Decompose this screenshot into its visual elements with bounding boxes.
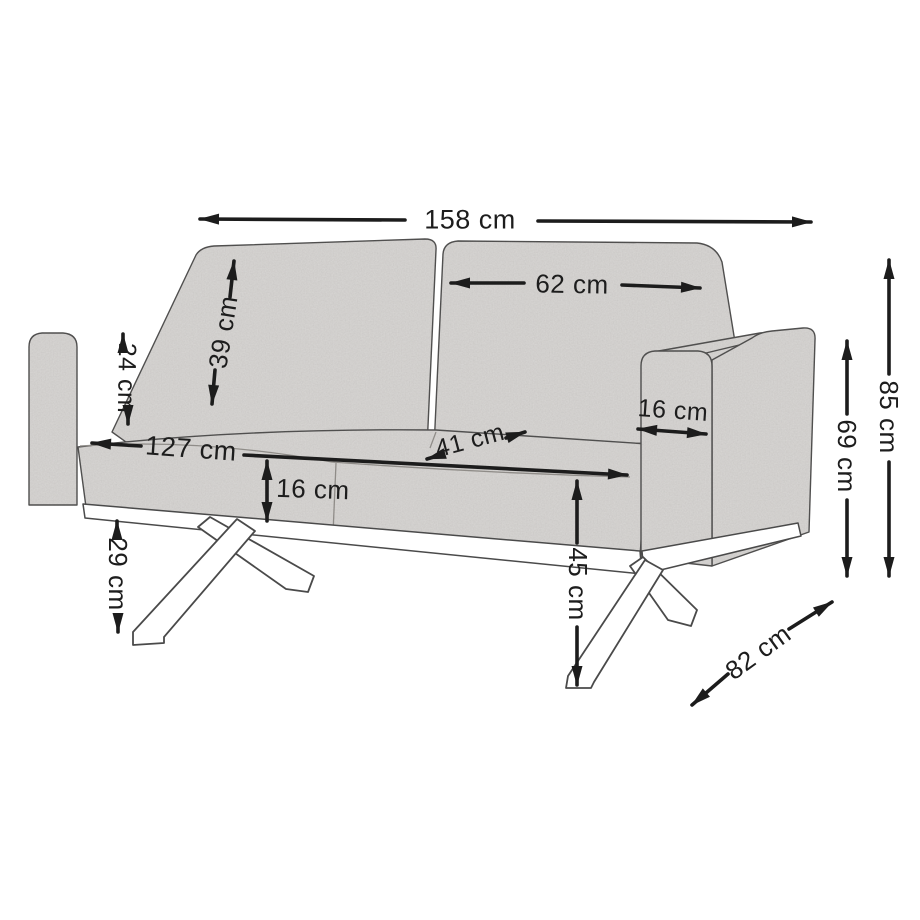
dim-label-seat-width: 127 cm: [144, 432, 237, 465]
sofa-illustration: [0, 0, 920, 920]
left-back-cushion: [112, 239, 436, 452]
left-arm-front: [29, 333, 77, 505]
left-leg-front-strut: [133, 519, 255, 645]
dim-label-seat-cushion-height: 16 cm: [276, 475, 350, 504]
dim-label-armrest-height: 69 cm: [834, 419, 860, 492]
dim-label-total-height: 85 cm: [876, 380, 902, 453]
dim-label-underframe-clearance: 29 cm: [105, 537, 131, 610]
right-arm-front: [641, 351, 712, 566]
dim-label-seat-height: 45 cm: [565, 547, 591, 620]
sofa-dimension-diagram: 158 cm 62 cm 39 cm 24 cm 127 cm 41 cm 16…: [0, 0, 920, 920]
dim-label-armrest-width: 16 cm: [637, 396, 709, 426]
dim-label-back-cushion-width: 62 cm: [535, 270, 609, 297]
dim-label-armrest-height-above-seat: 24 cm: [113, 342, 139, 413]
dim-label-overall-width: 158 cm: [424, 207, 516, 234]
